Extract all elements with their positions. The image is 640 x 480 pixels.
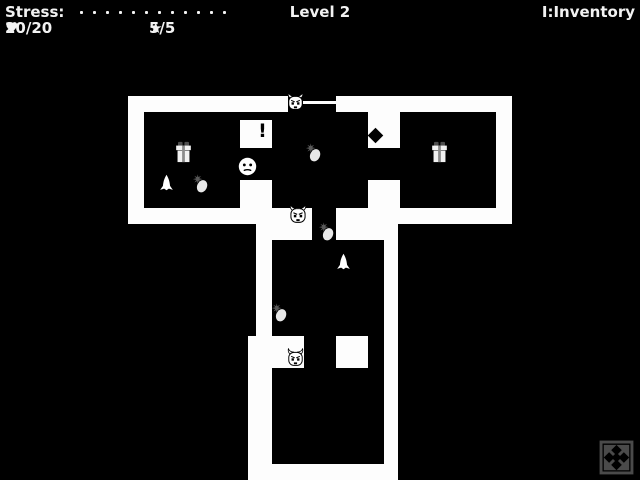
wall-segment: [303, 101, 336, 104]
wall-segment: [248, 368, 272, 464]
wall-segment: [496, 112, 512, 224]
wall-segment: [336, 336, 368, 368]
wall-segment: [128, 112, 144, 224]
pineapple-item-lower-room: [270, 302, 289, 323]
pineapple-item-center-room: [304, 142, 323, 163]
gift-item-left-room: [172, 141, 195, 163]
wall-segment: [336, 208, 496, 224]
imp-enemy-top: [286, 92, 305, 111]
rocket-item-middle-room: [334, 252, 353, 273]
exclamation-marker: !: [256, 120, 269, 142]
player-character: [238, 157, 257, 176]
wall-segment: [336, 96, 512, 112]
pineapple-item-left-room: [191, 173, 210, 194]
imp-enemy-bottom: [286, 348, 305, 367]
wall-segment: [384, 224, 398, 472]
game-screen[interactable]: Stress: Level 2 I:Inventory ♥ 20/20 ★ 5/…: [0, 0, 640, 480]
wall-segment: [144, 208, 312, 224]
pineapple-item-corridor: [317, 221, 336, 242]
gift-item-right-room: [428, 141, 451, 163]
wall-segment: [128, 96, 288, 112]
imp-enemy-middle: [288, 204, 308, 224]
fullscreen-button[interactable]: [599, 440, 634, 475]
rocket-item-left-room: [157, 173, 176, 194]
wall-segment: [336, 224, 384, 240]
fullscreen-icon: [599, 440, 634, 475]
wall-segment: [240, 180, 272, 208]
wall-segment: [256, 224, 312, 240]
dungeon-map: !: [0, 0, 640, 480]
wall-segment: [248, 464, 398, 480]
wall-segment: [368, 180, 400, 208]
